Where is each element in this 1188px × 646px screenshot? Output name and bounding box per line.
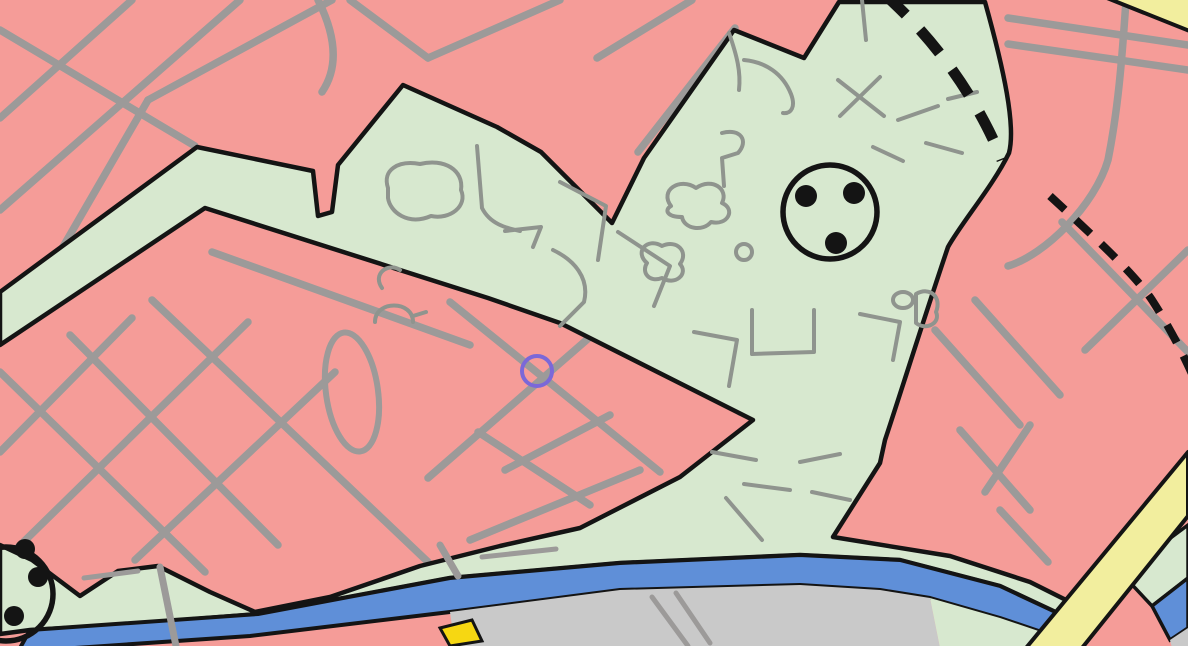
symbol-dot [795, 185, 817, 207]
symbol-dot [825, 232, 847, 254]
map-viewport[interactable] [0, 0, 1188, 646]
symbol-dot [843, 182, 865, 204]
symbol-dot [15, 539, 35, 559]
symbol-dot [28, 567, 48, 587]
symbol-dot [4, 606, 24, 626]
zoning-map-canvas[interactable] [0, 0, 1188, 646]
